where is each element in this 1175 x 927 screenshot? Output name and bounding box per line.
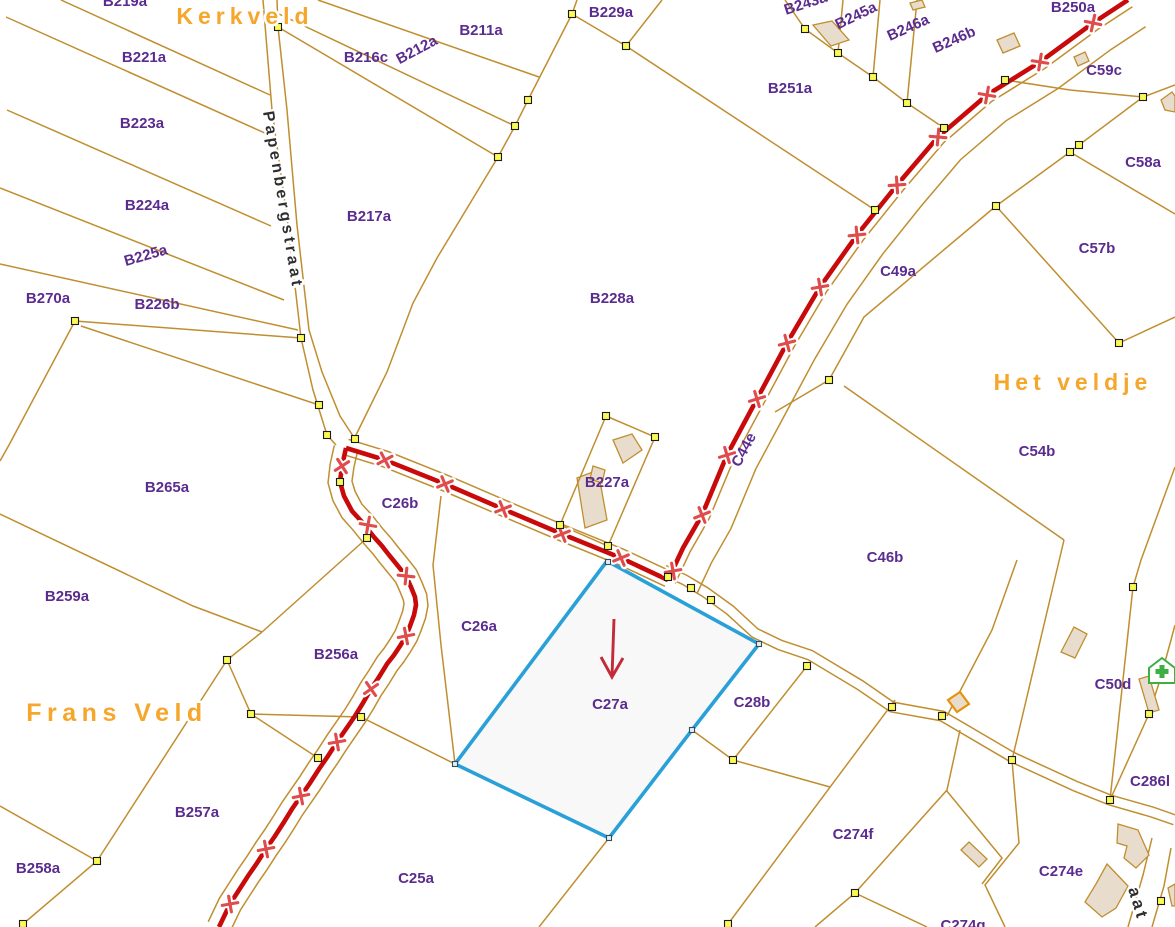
svg-text:B265a: B265a xyxy=(145,479,190,496)
svg-text:C28b: C28b xyxy=(734,694,771,711)
svg-text:C25a: C25a xyxy=(398,870,435,887)
svg-text:Frans Veld: Frans Veld xyxy=(26,699,207,727)
svg-text:C26a: C26a xyxy=(461,618,498,635)
svg-text:B224a: B224a xyxy=(125,197,170,214)
svg-text:B257a: B257a xyxy=(175,804,220,821)
svg-text:C27a: C27a xyxy=(592,696,629,713)
svg-text:C50d: C50d xyxy=(1095,676,1132,693)
svg-text:B227a: B227a xyxy=(585,474,630,491)
svg-text:B228a: B228a xyxy=(590,290,635,307)
svg-text:B258a: B258a xyxy=(16,860,61,877)
svg-text:B256a: B256a xyxy=(314,646,359,663)
svg-text:C59c: C59c xyxy=(1086,62,1122,79)
svg-text:C54b: C54b xyxy=(1019,443,1056,460)
svg-text:B270a: B270a xyxy=(26,290,71,307)
svg-text:B223a: B223a xyxy=(120,115,165,132)
svg-text:B226b: B226b xyxy=(134,296,179,313)
svg-text:B251a: B251a xyxy=(768,80,813,97)
svg-text:C26b: C26b xyxy=(382,495,419,512)
svg-text:C49a: C49a xyxy=(880,263,917,280)
svg-text:C58a: C58a xyxy=(1125,154,1162,171)
svg-text:B229a: B229a xyxy=(589,4,634,21)
svg-text:B259a: B259a xyxy=(45,588,90,605)
svg-text:C286l: C286l xyxy=(1130,773,1170,790)
svg-text:B211a: B211a xyxy=(459,22,503,39)
svg-text:Kerkveld: Kerkveld xyxy=(176,3,313,29)
svg-text:B216c: B216c xyxy=(344,49,388,66)
svg-text:B219a: B219a xyxy=(103,0,148,10)
svg-text:C274f: C274f xyxy=(833,826,875,843)
svg-text:C57b: C57b xyxy=(1079,240,1116,257)
svg-text:Het veldje: Het veldje xyxy=(994,369,1153,395)
svg-text:C274e: C274e xyxy=(1039,863,1083,880)
svg-text:B221a: B221a xyxy=(122,49,167,66)
svg-text:C46b: C46b xyxy=(867,549,904,566)
svg-text:B217a: B217a xyxy=(347,208,392,225)
svg-text:C274g: C274g xyxy=(940,917,985,927)
svg-text:B250a: B250a xyxy=(1051,0,1096,16)
